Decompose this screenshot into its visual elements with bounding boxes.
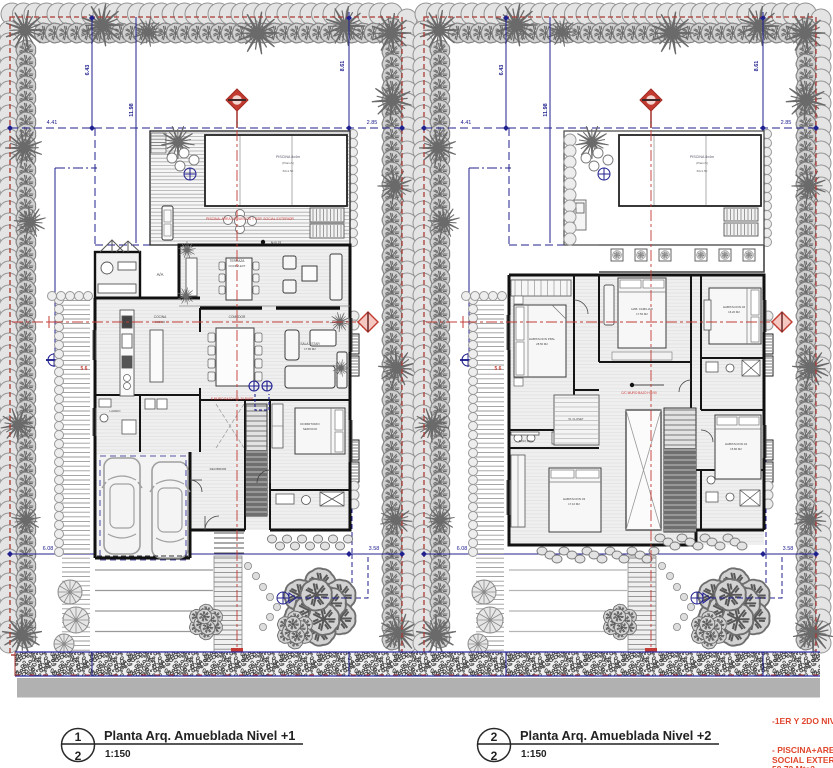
- svg-text:Planta Arq. Amueblada Nivel +1: Planta Arq. Amueblada Nivel +1: [104, 728, 295, 743]
- svg-text:5 6: 5 6: [81, 366, 88, 372]
- svg-text:Planta Arq. Amueblada Nivel +2: Planta Arq. Amueblada Nivel +2: [520, 728, 711, 743]
- svg-text:15.80 M2: 15.80 M2: [730, 447, 742, 451]
- svg-text:E MURO BAJO H=1.20 BASE: E MURO BAJO H=1.20 BASE: [211, 397, 254, 401]
- svg-text:4.41: 4.41: [47, 120, 58, 126]
- svg-text:- PISCINA+AREA: - PISCINA+AREA: [772, 745, 833, 755]
- svg-text:PISCINA: AREA DE JUEGOS Y ESP.: PISCINA: AREA DE JUEGOS Y ESP. SOCIAL EX…: [206, 217, 294, 221]
- svg-text:C/C MURO BAJO H 0.90: C/C MURO BAJO H 0.90: [621, 391, 657, 395]
- svg-text:(PlanoS): (PlanoS): [696, 161, 708, 165]
- svg-text:3.58: 3.58: [783, 546, 794, 552]
- svg-text:60x1.50: 60x1.50: [283, 169, 294, 173]
- svg-text:1: 1: [75, 730, 82, 744]
- svg-text:6.43: 6.43: [85, 65, 91, 76]
- svg-text:HABITACION PPAL: HABITACION PPAL: [529, 337, 556, 341]
- svg-text:SALA ESTAR: SALA ESTAR: [300, 342, 320, 346]
- svg-text:28.50 M2: 28.50 M2: [536, 342, 548, 346]
- svg-text:LAVADO: LAVADO: [110, 409, 122, 413]
- svg-text:HAB. FAMILIAR: HAB. FAMILIAR: [631, 307, 653, 311]
- svg-text:2.85: 2.85: [367, 120, 378, 126]
- svg-text:8.61: 8.61: [754, 61, 760, 72]
- svg-text:5 6: 5 6: [495, 366, 502, 372]
- svg-text:PISCINA 8x4m: PISCINA 8x4m: [276, 155, 300, 159]
- svg-text:1:150: 1:150: [105, 749, 131, 760]
- svg-text:8.61: 8.61: [340, 61, 346, 72]
- svg-text:BANO PPAL: BANO PPAL: [519, 439, 534, 443]
- svg-text:1:150: 1:150: [521, 749, 547, 760]
- svg-text:6.43: 6.43: [499, 65, 505, 76]
- svg-text:4.41: 4.41: [461, 120, 472, 126]
- svg-text:SERVICIO: SERVICIO: [303, 427, 318, 431]
- svg-text:59.72 Mts2: 59.72 Mts2: [772, 764, 815, 768]
- svg-text:RECIBIDOR: RECIBIDOR: [210, 467, 228, 471]
- svg-text:-1ER Y 2DO NIVEL: -1ER Y 2DO NIVEL: [772, 716, 833, 726]
- svg-text:3.58: 3.58: [369, 546, 380, 552]
- svg-text:HABITACION 02: HABITACION 02: [723, 305, 746, 309]
- svg-text:6.08: 6.08: [457, 546, 468, 552]
- svg-text:2.85: 2.85: [781, 120, 792, 126]
- svg-text:A/A: A/A: [157, 272, 164, 277]
- svg-text:11.98: 11.98: [129, 103, 135, 116]
- svg-text:17.80 M2: 17.80 M2: [304, 347, 316, 351]
- svg-text:HABITACION 04: HABITACION 04: [725, 442, 748, 446]
- svg-text:16.20 M2: 16.20 M2: [728, 310, 740, 314]
- svg-text:COCINA: COCINA: [154, 315, 167, 319]
- svg-text:PISCINA 8x4m: PISCINA 8x4m: [690, 155, 714, 159]
- svg-text:11.98: 11.98: [543, 103, 549, 116]
- svg-text:17.50 M2: 17.50 M2: [636, 312, 648, 316]
- svg-text:HABITACION 03: HABITACION 03: [563, 497, 586, 501]
- svg-text:60x1.50: 60x1.50: [697, 169, 708, 173]
- svg-text:DORMITORIO: DORMITORIO: [300, 422, 320, 426]
- svg-text:2: 2: [491, 749, 498, 763]
- svg-text:2: 2: [75, 749, 82, 763]
- svg-text:W. CLOSET: W. CLOSET: [568, 417, 584, 421]
- svg-text:6.08: 6.08: [43, 546, 54, 552]
- svg-text:(PlanoS): (PlanoS): [282, 161, 294, 165]
- svg-text:17.10 M2: 17.10 M2: [568, 502, 580, 506]
- svg-text:2: 2: [491, 730, 498, 744]
